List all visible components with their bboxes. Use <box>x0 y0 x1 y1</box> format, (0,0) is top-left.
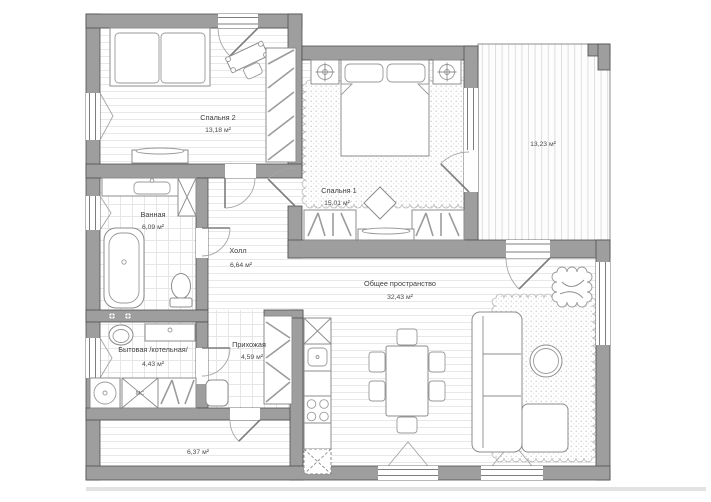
utility-storage <box>158 378 196 408</box>
bedroom2-tv <box>136 148 184 154</box>
bedroom1-pillow-right <box>387 64 425 82</box>
kitchen-sink-drain <box>316 356 319 359</box>
wall-top-bedroom1 <box>302 46 478 60</box>
wall-bedroom2-bathroom <box>86 164 302 178</box>
utility-area-label: 4,43 м² <box>142 361 165 368</box>
utility-window-gap <box>86 338 100 378</box>
bathtub-inner <box>109 233 139 303</box>
bedroom2-door-gap <box>225 164 256 178</box>
bedroom2-area-label: 13,18 м² <box>205 127 232 134</box>
coffee-table-inner <box>534 349 559 374</box>
toilet-tank <box>170 298 192 307</box>
wall-utility-porch <box>86 408 302 420</box>
living-window-bottom2-gap <box>481 466 543 480</box>
bedroom2-balcony-door-gap <box>218 14 258 28</box>
bedroom2-window-gap <box>86 93 100 140</box>
bathroom-name-label: Ванная <box>141 210 166 219</box>
porch-door-gap <box>230 408 260 420</box>
bedroom2-wardrobe <box>266 48 296 162</box>
kitchen-counter2 <box>304 423 331 449</box>
sofa-chaise <box>522 404 568 452</box>
bedroom1-closet-right <box>412 210 464 240</box>
porch-floor <box>100 418 290 466</box>
bedroom1-area-label: 15,01 м² <box>324 200 351 207</box>
wall-terrace-corner-v <box>598 44 610 70</box>
hall-area-label: 6,64 м² <box>230 262 253 269</box>
wall-bedroom1-living <box>288 240 610 258</box>
bathroom-area-label: 6,09 м² <box>142 224 165 231</box>
entry-name-label: Прихожая <box>232 340 266 349</box>
porch-area-label: 6,37 м² <box>187 449 210 456</box>
terrace-door-gap <box>506 240 550 258</box>
floor-plan-canvas: МС <box>0 0 711 502</box>
bedroom2-mattress-left <box>115 33 159 83</box>
bathroom-tap <box>150 179 154 183</box>
living-window-right-gap <box>596 262 610 345</box>
utility-name-label: Бытовая /котельная/ <box>118 345 189 354</box>
common-area-label: 32,43 м² <box>387 294 414 301</box>
bathroom-door-gap <box>196 228 208 258</box>
bedroom2-name-label: Спальня 2 <box>200 113 235 122</box>
utility-counter <box>145 324 195 341</box>
utility-door-gap <box>196 348 208 384</box>
bedroom2-mattress-right <box>161 33 205 83</box>
boiler-center <box>103 391 107 395</box>
utility-basin-inner <box>113 330 129 343</box>
toilet-bowl <box>172 274 191 299</box>
washer-label: МС <box>136 391 144 397</box>
kitchen-furniture <box>304 318 331 474</box>
outdoor-step-edge <box>86 487 706 491</box>
bathtub-drain <box>122 260 126 264</box>
wall-bathroom-utility <box>86 310 208 322</box>
bedroom1-pillow-left <box>345 64 383 82</box>
floor-plan-page: МС <box>0 0 711 502</box>
entry-area-label: 4,59 м² <box>241 354 264 361</box>
bedroom1-tv <box>362 228 410 234</box>
utility-tap <box>168 328 172 332</box>
sofa <box>472 312 522 452</box>
bedroom1-terrace-door-gap <box>464 150 478 192</box>
terrace-area-label: 13,23 м² <box>530 141 557 148</box>
bathroom-window-gap <box>86 196 100 230</box>
living-window-bottom1-gap <box>378 466 438 480</box>
bedroom1-name-label: Спальня 1 <box>321 186 356 195</box>
bedroom1-window-gap <box>464 88 478 150</box>
hall-name-label: Холл <box>229 246 246 255</box>
wall-top-bedroom2 <box>86 14 302 28</box>
bedroom1-closet-left <box>304 210 356 240</box>
common-name-label: Общее пространство <box>364 279 436 288</box>
entry-bench <box>206 380 228 406</box>
bathroom-sink <box>134 182 170 194</box>
dining-table <box>386 346 428 416</box>
kitchen-counter1 <box>304 371 331 396</box>
